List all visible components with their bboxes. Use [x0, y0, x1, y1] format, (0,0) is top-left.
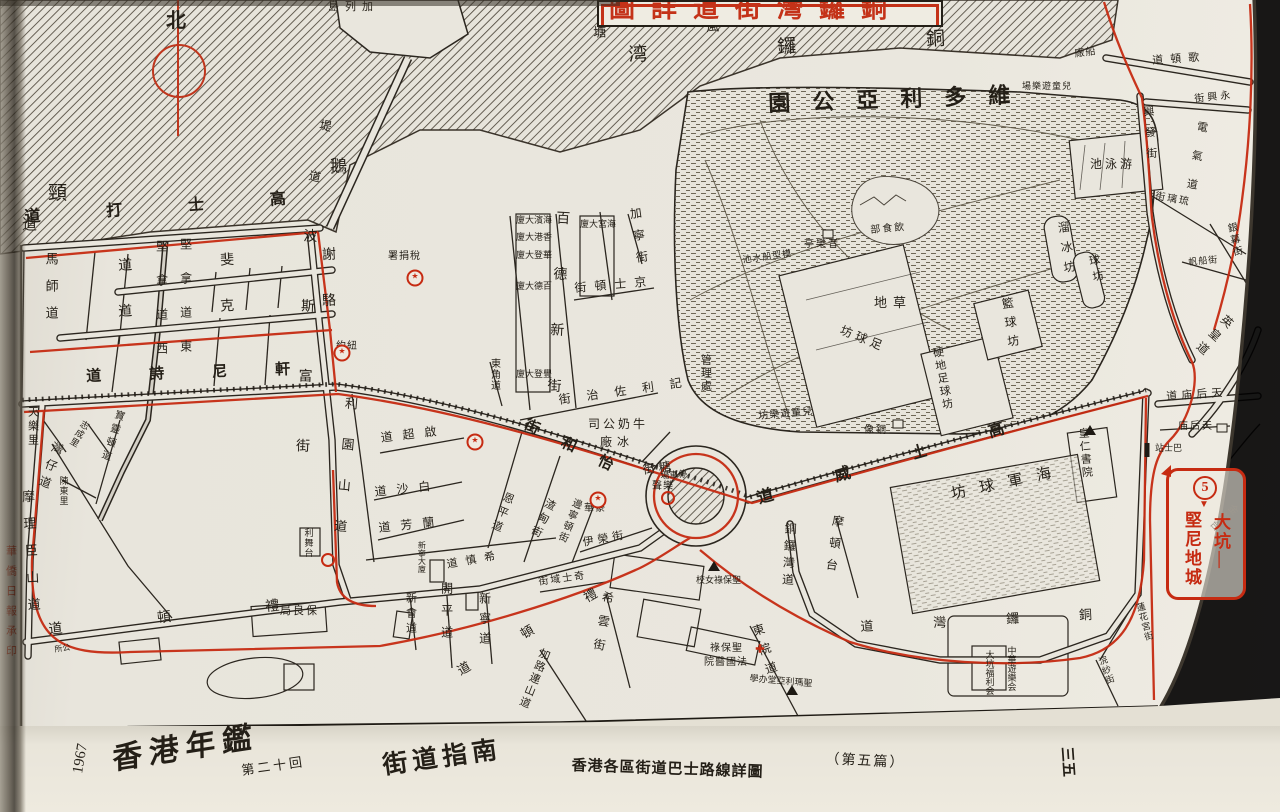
map-label: 新寧道 — [478, 592, 491, 652]
map-label: 廈大登豐 — [516, 370, 552, 379]
bus-stop-ring-marker-icon — [321, 553, 335, 567]
map-label: 頸 — [48, 184, 67, 204]
compass: 北 — [140, 0, 220, 140]
map-label: 管理處 — [699, 354, 711, 393]
map-label: 庙后天 — [1178, 422, 1214, 433]
map-label: 堅拿道東 — [179, 238, 192, 374]
badge-pointer-icon — [1161, 465, 1171, 477]
caption-year: 1967 — [70, 742, 92, 774]
map-label: 祿保聖 — [710, 644, 743, 655]
map-label: 開平道 — [440, 582, 453, 648]
map-label: 廈大濱海 — [516, 216, 552, 225]
map-title-box: 圖詳道街灣鑼銅 — [597, 0, 943, 27]
map-label: 池泳游 — [1090, 158, 1135, 171]
route-number: 5 — [1193, 476, 1217, 500]
arrow-down-icon: ▼ — [1199, 499, 1209, 510]
tax-office-marker-icon: ★ — [407, 270, 424, 287]
map-label: 校女祿保聖 — [696, 576, 741, 585]
compass-north-label: 北 — [166, 4, 186, 33]
map-label: 鵝 — [330, 158, 347, 176]
map-label: 天樂里 — [26, 406, 38, 448]
new-york-theatre-marker-icon: ★ — [334, 345, 351, 362]
map-label: 東角道 — [488, 358, 499, 391]
map-label: 中華遊樂会 — [1006, 646, 1015, 691]
compass-ring — [152, 44, 206, 98]
map-label: 院醫國法 — [704, 658, 748, 669]
church-triangle-icon — [786, 685, 798, 695]
statue-square-icon — [893, 420, 904, 429]
map-label: 廠冰 — [600, 436, 634, 449]
map-label: 局良保 — [280, 606, 319, 618]
photo-top-edge-shadow — [0, 0, 620, 6]
pavilion-square-icon — [823, 230, 834, 239]
map-label: 廈大港香 — [516, 233, 552, 242]
map-label: 大坑福利会 — [984, 650, 993, 695]
map-label: 署捐稅 — [388, 252, 421, 263]
map-label: 像銅 — [864, 426, 888, 437]
map-label: 利舞台 — [303, 528, 312, 558]
bus-stop-bar-icon — [1145, 443, 1150, 457]
caption-part: （第五篇） — [825, 748, 906, 772]
map-label: 廈大登華 — [516, 251, 552, 260]
map-label: 銅鑼灣道 — [780, 522, 796, 591]
map-label: 地草 — [874, 296, 912, 310]
theatre-marker-icon: ★ — [467, 434, 484, 451]
hospital-cross-icon: ✚ — [755, 645, 766, 656]
map-label: 新會道 — [404, 592, 416, 637]
temple-square-icon — [1217, 424, 1228, 433]
map-label: 廈大德百 — [516, 282, 552, 291]
map-label: 陳東里 — [58, 476, 67, 506]
school-triangle-icon — [708, 561, 720, 571]
map-label: 堅拿道西 — [155, 240, 168, 376]
map-label: 站士巴 — [1155, 444, 1182, 453]
map-label: 亭樂音 — [804, 240, 840, 251]
map-label: 廈大宮海 — [580, 220, 616, 229]
caption-page-number: 三五 — [1057, 746, 1080, 777]
caption-strip: 1967 香港年鑑 第二十回 街道指南 香港各區街道巴士路線詳圖 （第五篇） 三… — [0, 726, 1280, 812]
photographed-map-page: 塘風避湾鑼銅島列加堤道鵝頸道園公亞利多維池泳游溜冰坊球坊籃球坊地草坊球足硬地足球… — [0, 0, 1280, 812]
caption-section: 街道指南 — [380, 729, 504, 781]
hoover-theatre-marker-icon: ★ — [590, 492, 607, 509]
college-triangle-icon — [1084, 425, 1096, 435]
map-label: 新寧大廈 — [417, 541, 425, 573]
bus-route-5-badge: 5 ▼ 大坑— 堅尼地城 — [1166, 468, 1246, 600]
route-from: 大坑— — [1208, 513, 1233, 570]
caption-series: 香港各區街道巴士路線詳圖 — [571, 754, 764, 782]
map-label: 場樂遊童兒 — [1022, 82, 1072, 91]
route-to: 堅尼地城 — [1179, 511, 1204, 587]
map-label: 馬師道 — [44, 252, 58, 333]
map-title: 圖詳道街灣鑼銅 — [609, 0, 943, 25]
map-label: 司公奶牛 — [588, 418, 648, 431]
book-gutter-shadow — [0, 0, 26, 812]
roxy-theatre-stop-marker-icon — [661, 491, 675, 505]
